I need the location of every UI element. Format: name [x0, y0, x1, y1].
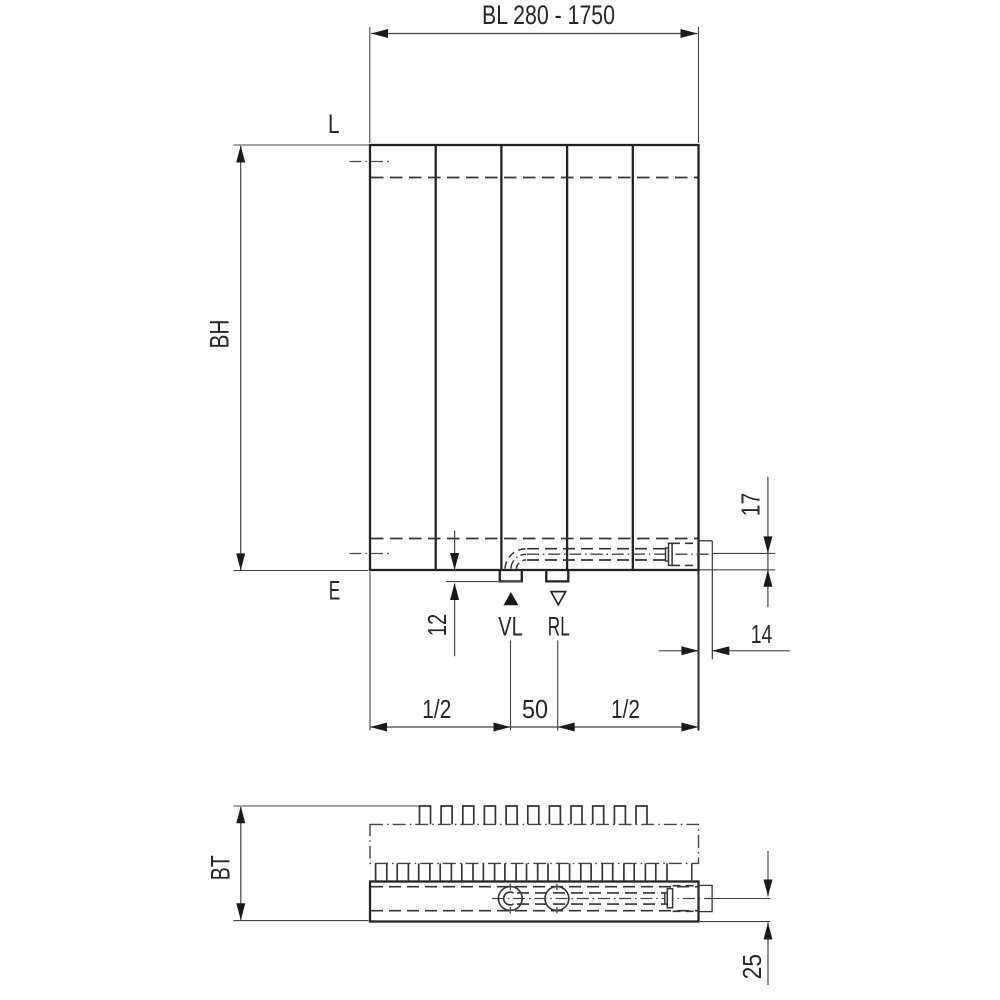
- svg-text:RL: RL: [548, 612, 570, 642]
- svg-text:25: 25: [739, 954, 767, 980]
- svg-text:L: L: [328, 109, 340, 139]
- svg-text:1/2: 1/2: [422, 696, 451, 724]
- svg-text:BH: BH: [205, 320, 235, 349]
- svg-text:50: 50: [522, 696, 548, 724]
- svg-text:12: 12: [424, 614, 452, 637]
- svg-text:E: E: [329, 576, 341, 606]
- svg-text:1/2: 1/2: [611, 696, 640, 724]
- svg-text:17: 17: [738, 493, 766, 517]
- svg-text:BT: BT: [206, 855, 236, 880]
- svg-text:14: 14: [751, 621, 773, 649]
- svg-text:BL 280 - 1750: BL 280 - 1750: [482, 0, 615, 30]
- svg-text:VL: VL: [498, 612, 523, 642]
